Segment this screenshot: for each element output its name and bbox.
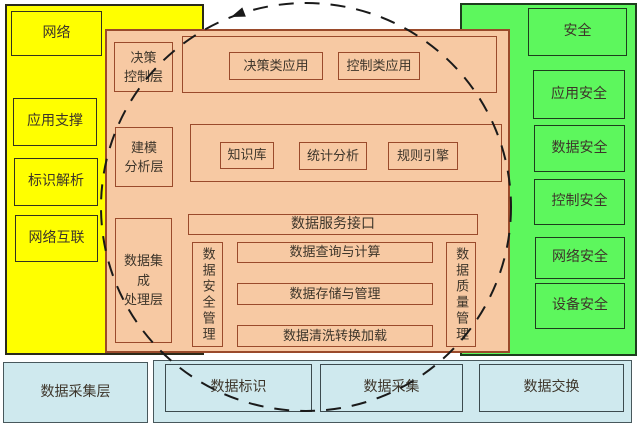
- integration-layer-label-line3: 处理层: [124, 290, 163, 310]
- decision-layer-label-line2: 控制层: [124, 67, 163, 87]
- data-collection-label: 数据采集: [364, 379, 420, 397]
- left-item-id-resolution: 标识解析: [14, 158, 98, 206]
- data-exchange-label: 数据交换: [524, 379, 580, 397]
- data-security-mgmt-label: 数据安全管理: [199, 247, 215, 343]
- collection-layer-box: 数据采集层: [3, 362, 148, 423]
- modeling-layer-label-line1: 建模: [131, 138, 157, 158]
- data-identification-box: 数据标识: [165, 364, 312, 412]
- right-item-data-security: 数据安全: [534, 125, 625, 172]
- integration-layer-label-line2: 成: [137, 271, 150, 291]
- data-quality-mgmt-box: 数据质量管理: [446, 242, 476, 347]
- data-etl-label: 数据清洗转换加载: [283, 328, 387, 344]
- right-item-security-label: 安全: [564, 23, 592, 41]
- knowledge-base-label: 知识库: [227, 147, 266, 163]
- integration-layer-label: 数据集 成 处理层: [115, 218, 172, 343]
- right-item-security: 安全: [528, 8, 627, 56]
- statistical-analysis-box: 统计分析: [299, 142, 367, 170]
- data-storage-mgmt-box: 数据存储与管理: [237, 283, 433, 305]
- statistical-analysis-label: 统计分析: [307, 148, 359, 164]
- left-item-network: 网络: [11, 11, 102, 56]
- architecture-diagram: 网络 应用支撑 标识解析 网络互联 安全 应用安全 数据安全 控制安全 网络安全…: [0, 0, 640, 427]
- control-app-box: 控制类应用: [338, 52, 420, 80]
- collection-layer-label: 数据采集层: [41, 384, 111, 402]
- right-item-data-security-label: 数据安全: [552, 140, 608, 158]
- left-item-app-support: 应用支撑: [13, 98, 97, 146]
- left-item-interconnect: 网络互联: [15, 215, 98, 262]
- knowledge-base-box: 知识库: [220, 142, 274, 169]
- decision-layer-label: 决策 控制层: [114, 42, 173, 92]
- data-etl-box: 数据清洗转换加载: [237, 325, 433, 347]
- modeling-layer-label: 建模 分析层: [115, 127, 173, 187]
- right-item-device-security: 设备安全: [535, 283, 625, 329]
- data-identification-label: 数据标识: [211, 379, 267, 397]
- right-item-app-security: 应用安全: [533, 70, 625, 119]
- decision-layer-label-line1: 决策: [130, 48, 156, 68]
- right-item-app-security-label: 应用安全: [551, 86, 607, 104]
- data-service-interface-box: 数据服务接口: [188, 214, 478, 235]
- data-exchange-box: 数据交换: [479, 364, 624, 412]
- control-app-label: 控制类应用: [346, 58, 411, 74]
- left-item-id-resolution-label: 标识解析: [28, 173, 84, 191]
- decision-app-box: 决策类应用: [229, 52, 323, 80]
- right-item-control-security-label: 控制安全: [552, 193, 608, 211]
- data-storage-mgmt-label: 数据存储与管理: [289, 286, 380, 302]
- data-collection-box: 数据采集: [320, 364, 463, 412]
- right-item-control-security: 控制安全: [534, 179, 625, 225]
- modeling-layer-label-line2: 分析层: [124, 157, 163, 177]
- integration-layer-label-line1: 数据集: [124, 251, 163, 271]
- right-item-network-security-label: 网络安全: [552, 249, 608, 267]
- left-item-interconnect-label: 网络互联: [29, 230, 85, 248]
- rule-engine-label: 规则引擎: [397, 148, 449, 164]
- rule-engine-box: 规则引擎: [388, 142, 458, 170]
- data-query-compute-label: 数据查询与计算: [289, 244, 380, 260]
- data-quality-mgmt-label: 数据质量管理: [453, 247, 469, 343]
- right-item-device-security-label: 设备安全: [552, 297, 608, 315]
- right-item-network-security: 网络安全: [535, 237, 625, 279]
- data-security-mgmt-box: 数据安全管理: [192, 242, 223, 347]
- left-item-network-label: 网络: [43, 25, 71, 43]
- decision-app-label: 决策类应用: [243, 58, 308, 74]
- circle-arrowhead-icon: [229, 7, 246, 21]
- left-item-app-support-label: 应用支撑: [27, 113, 83, 131]
- data-query-compute-box: 数据查询与计算: [237, 242, 433, 263]
- data-service-interface-label: 数据服务接口: [291, 216, 375, 234]
